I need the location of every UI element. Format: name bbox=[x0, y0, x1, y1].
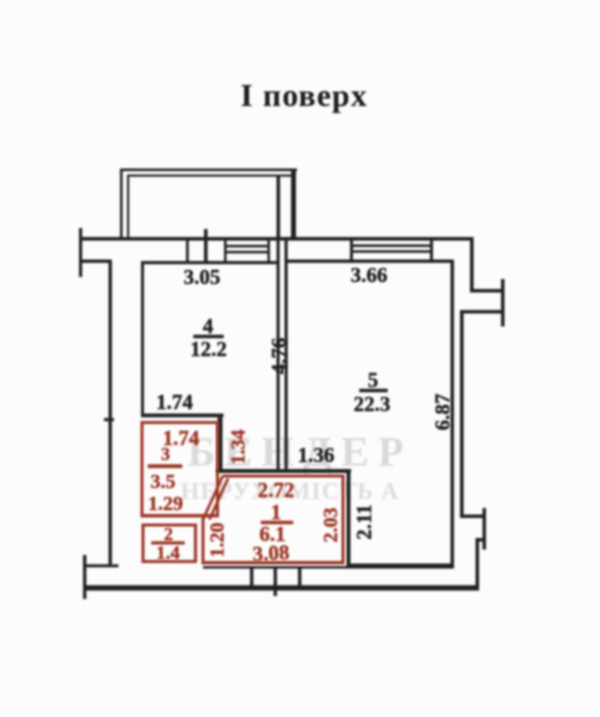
svg-text:4: 4 bbox=[203, 314, 214, 338]
svg-text:1.29: 1.29 bbox=[148, 493, 183, 515]
svg-text:12.2: 12.2 bbox=[190, 337, 227, 361]
svg-text:5: 5 bbox=[368, 368, 379, 392]
svg-text:6.87: 6.87 bbox=[431, 394, 455, 431]
svg-text:3.66: 3.66 bbox=[351, 263, 388, 287]
svg-text:4.76: 4.76 bbox=[267, 338, 291, 375]
svg-text:1.20: 1.20 bbox=[207, 523, 229, 558]
svg-text:1.4: 1.4 bbox=[156, 543, 180, 564]
svg-text:2: 2 bbox=[164, 524, 173, 544]
svg-text:22.3: 22.3 bbox=[354, 392, 391, 416]
svg-text:3: 3 bbox=[161, 444, 170, 464]
svg-text:І поверх: І поверх bbox=[240, 77, 367, 113]
svg-text:2.11: 2.11 bbox=[352, 504, 376, 540]
svg-text:1.34: 1.34 bbox=[228, 430, 250, 465]
svg-text:1.36: 1.36 bbox=[298, 443, 335, 467]
svg-text:3.08: 3.08 bbox=[252, 540, 290, 566]
svg-text:3.05: 3.05 bbox=[184, 265, 221, 289]
svg-text:3.5: 3.5 bbox=[151, 471, 176, 493]
svg-text:2.72: 2.72 bbox=[258, 478, 295, 502]
svg-text:1: 1 bbox=[271, 500, 282, 524]
svg-text:2.03: 2.03 bbox=[320, 508, 342, 543]
svg-text:1.74: 1.74 bbox=[156, 390, 193, 414]
